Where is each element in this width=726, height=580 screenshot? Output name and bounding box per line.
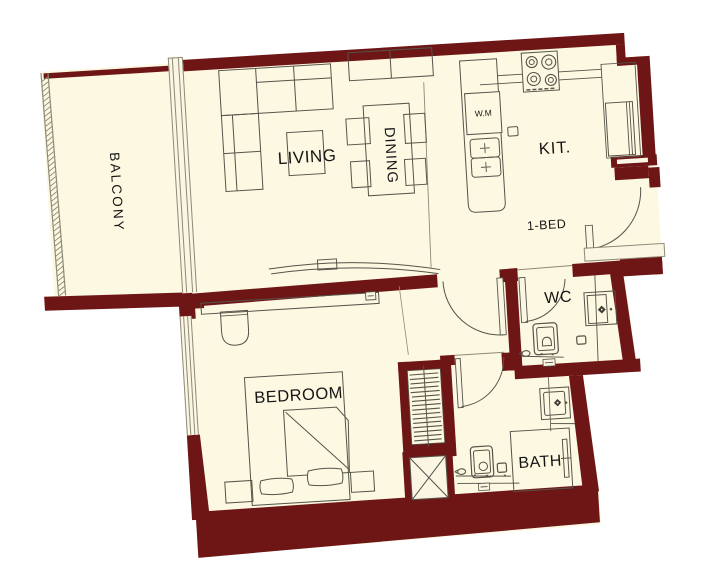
svg-text:W.M: W.M bbox=[474, 108, 492, 119]
svg-text:1-BED: 1-BED bbox=[527, 217, 567, 233]
svg-text:KIT.: KIT. bbox=[538, 138, 571, 158]
svg-text:WC: WC bbox=[544, 289, 573, 308]
svg-text:BATH: BATH bbox=[518, 453, 562, 473]
svg-text:LIVING: LIVING bbox=[277, 146, 337, 169]
